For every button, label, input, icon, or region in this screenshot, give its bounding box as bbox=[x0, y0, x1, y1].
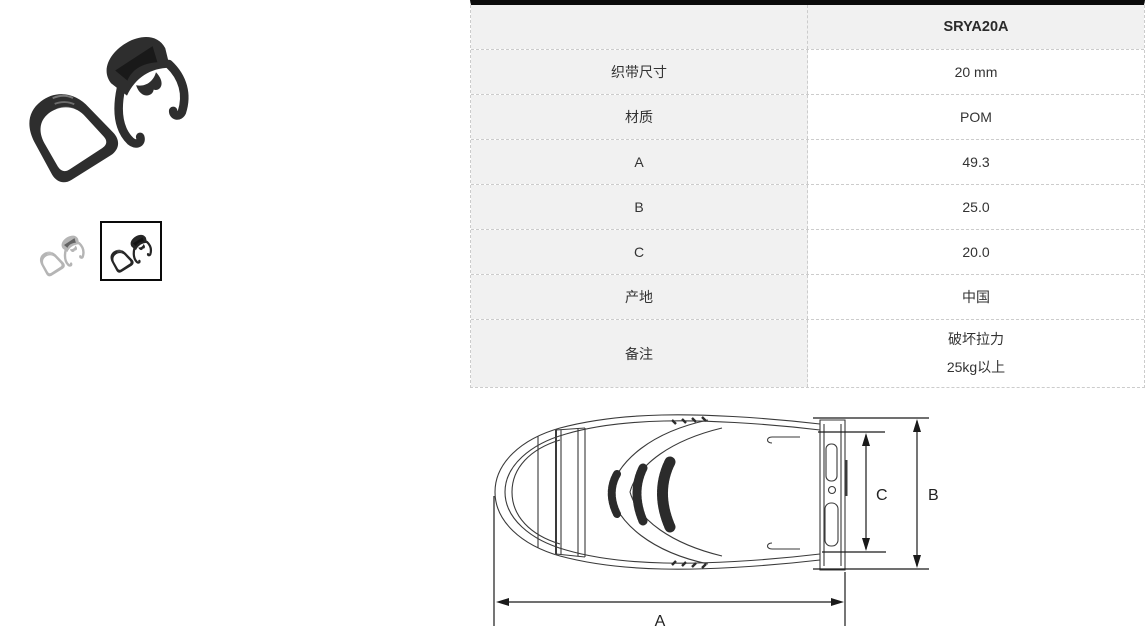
spec-value: POM bbox=[808, 95, 1144, 139]
spec-model: SRYA20A bbox=[808, 5, 1144, 49]
spec-header-row: SRYA20A bbox=[471, 5, 1144, 50]
product-page: SRYA20A 织带尺寸 20 mm 材质 POM A 49.3 B 25.0 … bbox=[0, 0, 1146, 629]
spec-row-material: 材质 POM bbox=[471, 95, 1144, 140]
spec-value: 25.0 bbox=[808, 185, 1144, 229]
spec-label: 备注 bbox=[471, 320, 808, 387]
spec-row-remarks: 备注 破坏拉力 25kg以上 bbox=[471, 320, 1144, 387]
spec-label: A bbox=[471, 140, 808, 184]
dimension-a-label: A bbox=[655, 613, 666, 629]
thumbnail-gray-variant[interactable] bbox=[34, 224, 90, 282]
grip-bands bbox=[612, 462, 670, 527]
spec-row-origin: 产地 中国 bbox=[471, 275, 1144, 320]
spec-label: 织带尺寸 bbox=[471, 50, 808, 94]
spec-label: 产地 bbox=[471, 275, 808, 319]
thumbnail-black-variant-selected[interactable] bbox=[100, 221, 162, 281]
spec-value: 20.0 bbox=[808, 230, 1144, 274]
spec-value: 中国 bbox=[808, 275, 1144, 319]
product-gallery bbox=[0, 0, 470, 400]
buckle-outline bbox=[495, 415, 846, 570]
spec-value: 49.3 bbox=[808, 140, 1144, 184]
spec-label: B bbox=[471, 185, 808, 229]
technical-drawing: A B C bbox=[480, 403, 946, 629]
spec-header-blank bbox=[471, 5, 808, 49]
spec-table: SRYA20A 织带尺寸 20 mm 材质 POM A 49.3 B 25.0 … bbox=[470, 0, 1145, 388]
spec-value: 20 mm bbox=[808, 50, 1144, 94]
spec-label: C bbox=[471, 230, 808, 274]
thumbnail-black-image bbox=[105, 226, 157, 276]
product-photo bbox=[8, 4, 208, 194]
dimension-b-label: B bbox=[928, 487, 939, 504]
dimension-c-label: C bbox=[876, 487, 888, 504]
spec-label: 材质 bbox=[471, 95, 808, 139]
spec-value: 破坏拉力 25kg以上 bbox=[808, 320, 1144, 387]
spec-row-dim-b: B 25.0 bbox=[471, 185, 1144, 230]
spec-row-webbing-size: 织带尺寸 20 mm bbox=[471, 50, 1144, 95]
spec-row-dim-c: C 20.0 bbox=[471, 230, 1144, 275]
spec-row-dim-a: A 49.3 bbox=[471, 140, 1144, 185]
